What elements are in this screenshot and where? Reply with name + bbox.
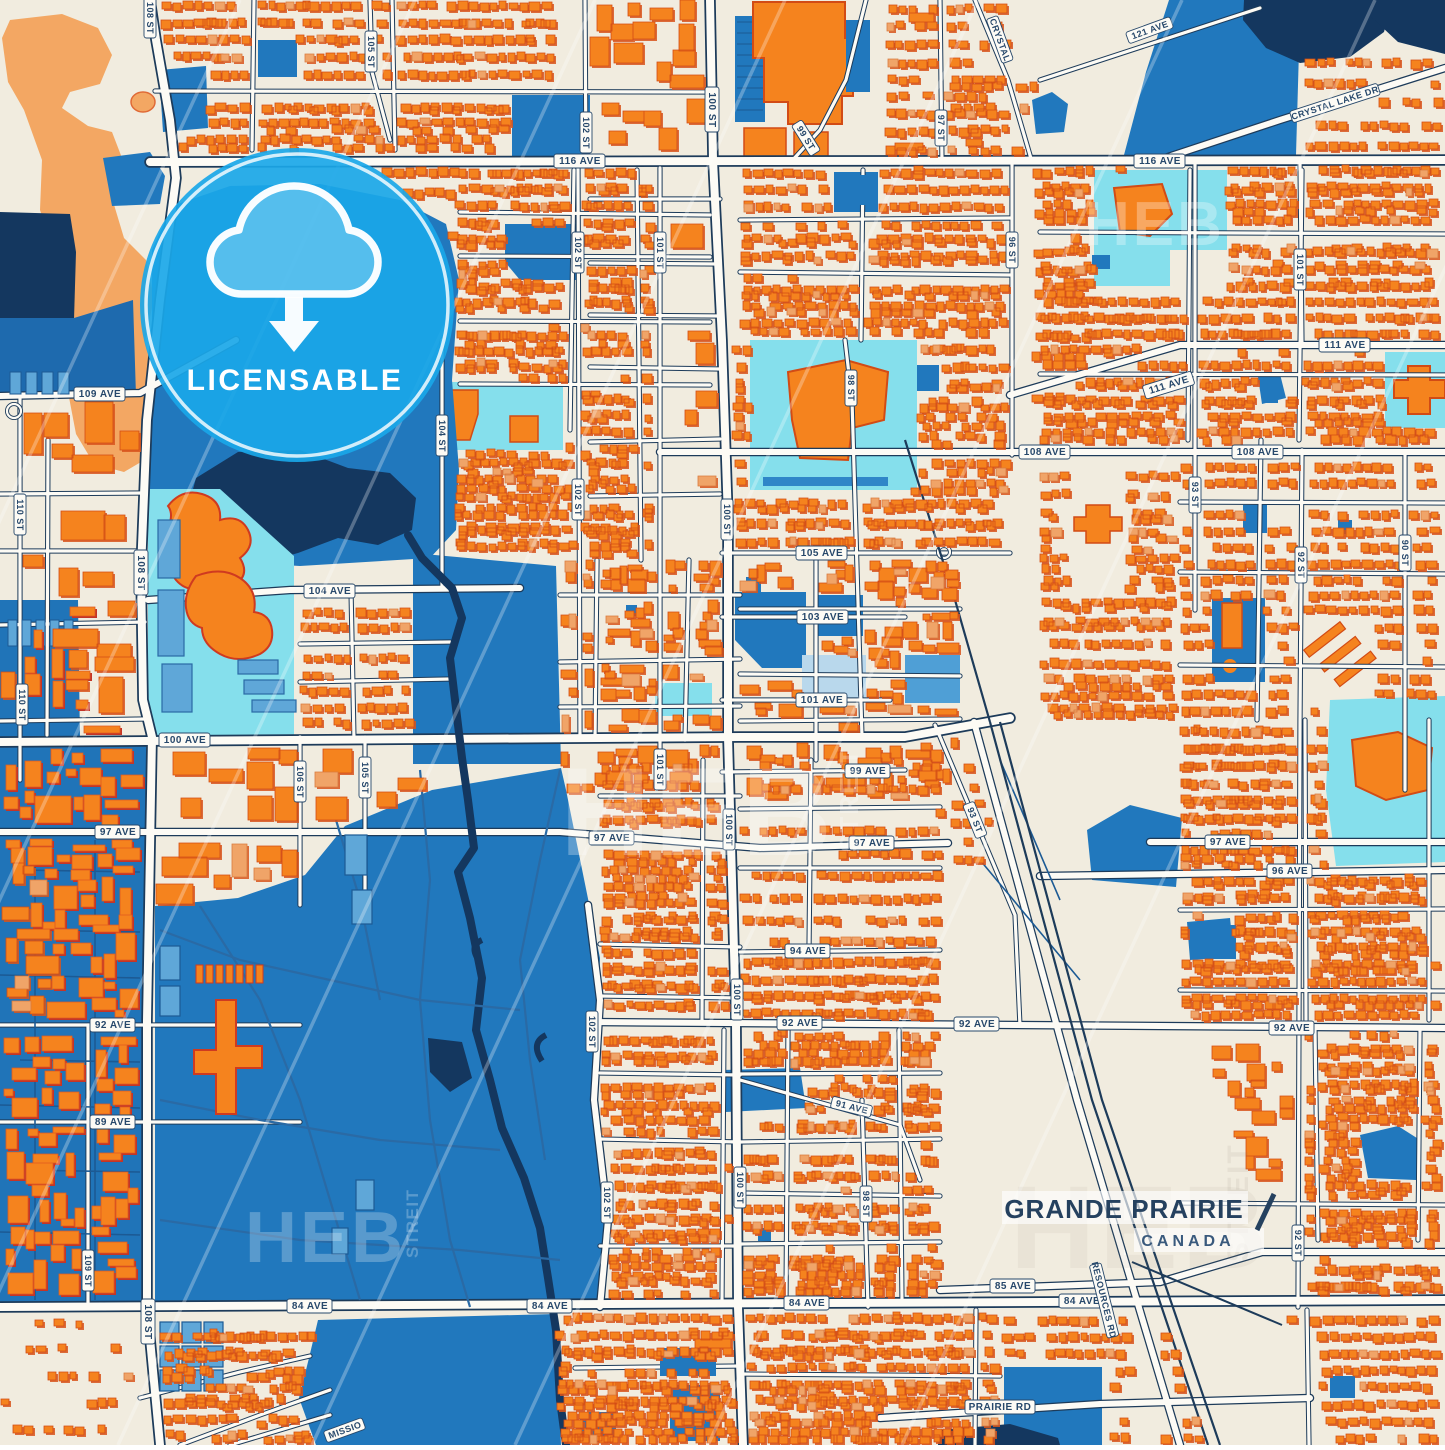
svg-text:108 ST: 108 ST	[142, 1304, 153, 1339]
svg-text:110 ST: 110 ST	[17, 689, 27, 721]
svg-text:109 ST: 109 ST	[83, 1255, 93, 1287]
svg-text:102 ST: 102 ST	[573, 484, 583, 516]
svg-text:92 ST: 92 ST	[1293, 1230, 1303, 1257]
svg-text:CANADA: CANADA	[1141, 1233, 1234, 1250]
svg-text:97 AVE: 97 AVE	[100, 827, 136, 838]
svg-text:PRAIRIE RD: PRAIRIE RD	[969, 1402, 1032, 1413]
svg-text:HEB: HEB	[1085, 190, 1225, 259]
svg-text:96 ST: 96 ST	[1007, 237, 1017, 264]
svg-text:98 ST: 98 ST	[846, 375, 856, 402]
svg-text:84 AVE: 84 AVE	[292, 1301, 328, 1312]
svg-text:89 AVE: 89 AVE	[95, 1117, 131, 1128]
svg-text:90 ST: 90 ST	[1400, 540, 1410, 567]
svg-text:105 AVE: 105 AVE	[801, 548, 843, 559]
svg-text:108 AVE: 108 AVE	[1237, 447, 1279, 458]
svg-text:92 AVE: 92 AVE	[95, 1020, 131, 1031]
svg-text:108 AVE: 108 AVE	[1024, 447, 1066, 458]
svg-text:92 AVE: 92 AVE	[959, 1019, 995, 1030]
svg-text:102 ST: 102 ST	[587, 1016, 597, 1048]
svg-text:97 AVE: 97 AVE	[1210, 837, 1246, 848]
svg-text:102 ST: 102 ST	[602, 1187, 612, 1219]
svg-text:98 ST: 98 ST	[861, 1191, 871, 1218]
svg-text:100 ST: 100 ST	[735, 1172, 745, 1204]
svg-text:LICENSABLE: LICENSABLE	[187, 364, 404, 397]
svg-text:100 ST: 100 ST	[732, 984, 742, 1016]
svg-text:STREIT: STREIT	[403, 1189, 422, 1258]
svg-text:101 AVE: 101 AVE	[801, 695, 843, 706]
svg-text:GRANDE PRAIRIE: GRANDE PRAIRIE	[1004, 1194, 1243, 1224]
svg-text:STREIT: STREIT	[834, 748, 864, 852]
svg-text:84 AVE: 84 AVE	[532, 1301, 568, 1312]
svg-text:103 AVE: 103 AVE	[802, 612, 844, 623]
svg-text:92 AVE: 92 AVE	[1274, 1023, 1310, 1034]
svg-text:84 AVE: 84 AVE	[1064, 1296, 1100, 1307]
svg-text:94 AVE: 94 AVE	[790, 946, 826, 957]
svg-text:109 AVE: 109 AVE	[79, 389, 121, 400]
svg-text:116 AVE: 116 AVE	[1139, 156, 1181, 167]
svg-text:102 ST: 102 ST	[581, 117, 591, 149]
svg-text:104 ST: 104 ST	[437, 420, 447, 452]
svg-text:116 AVE: 116 AVE	[559, 156, 601, 167]
svg-text:HEB: HEB	[560, 743, 836, 882]
svg-text:100 ST: 100 ST	[722, 504, 732, 536]
svg-text:84 AVE: 84 AVE	[789, 1298, 825, 1309]
svg-text:HEB: HEB	[245, 1198, 406, 1278]
svg-text:104 AVE: 104 AVE	[309, 586, 351, 597]
svg-text:106 ST: 106 ST	[295, 766, 305, 798]
svg-text:97 ST: 97 ST	[936, 115, 946, 142]
svg-text:110 ST: 110 ST	[15, 499, 25, 531]
svg-text:96 AVE: 96 AVE	[1272, 866, 1308, 877]
svg-text:108 ST: 108 ST	[145, 2, 155, 34]
svg-text:100 AVE: 100 AVE	[164, 735, 206, 746]
svg-text:93 ST: 93 ST	[1190, 482, 1200, 509]
svg-text:105 ST: 105 ST	[360, 762, 370, 794]
svg-text:100 ST: 100 ST	[706, 92, 717, 127]
svg-text:92 AVE: 92 AVE	[782, 1018, 818, 1029]
svg-text:111 AVE: 111 AVE	[1324, 340, 1365, 351]
svg-text:105 ST: 105 ST	[366, 36, 376, 68]
svg-text:101 ST: 101 ST	[1295, 254, 1305, 286]
svg-text:102 ST: 102 ST	[573, 237, 583, 269]
